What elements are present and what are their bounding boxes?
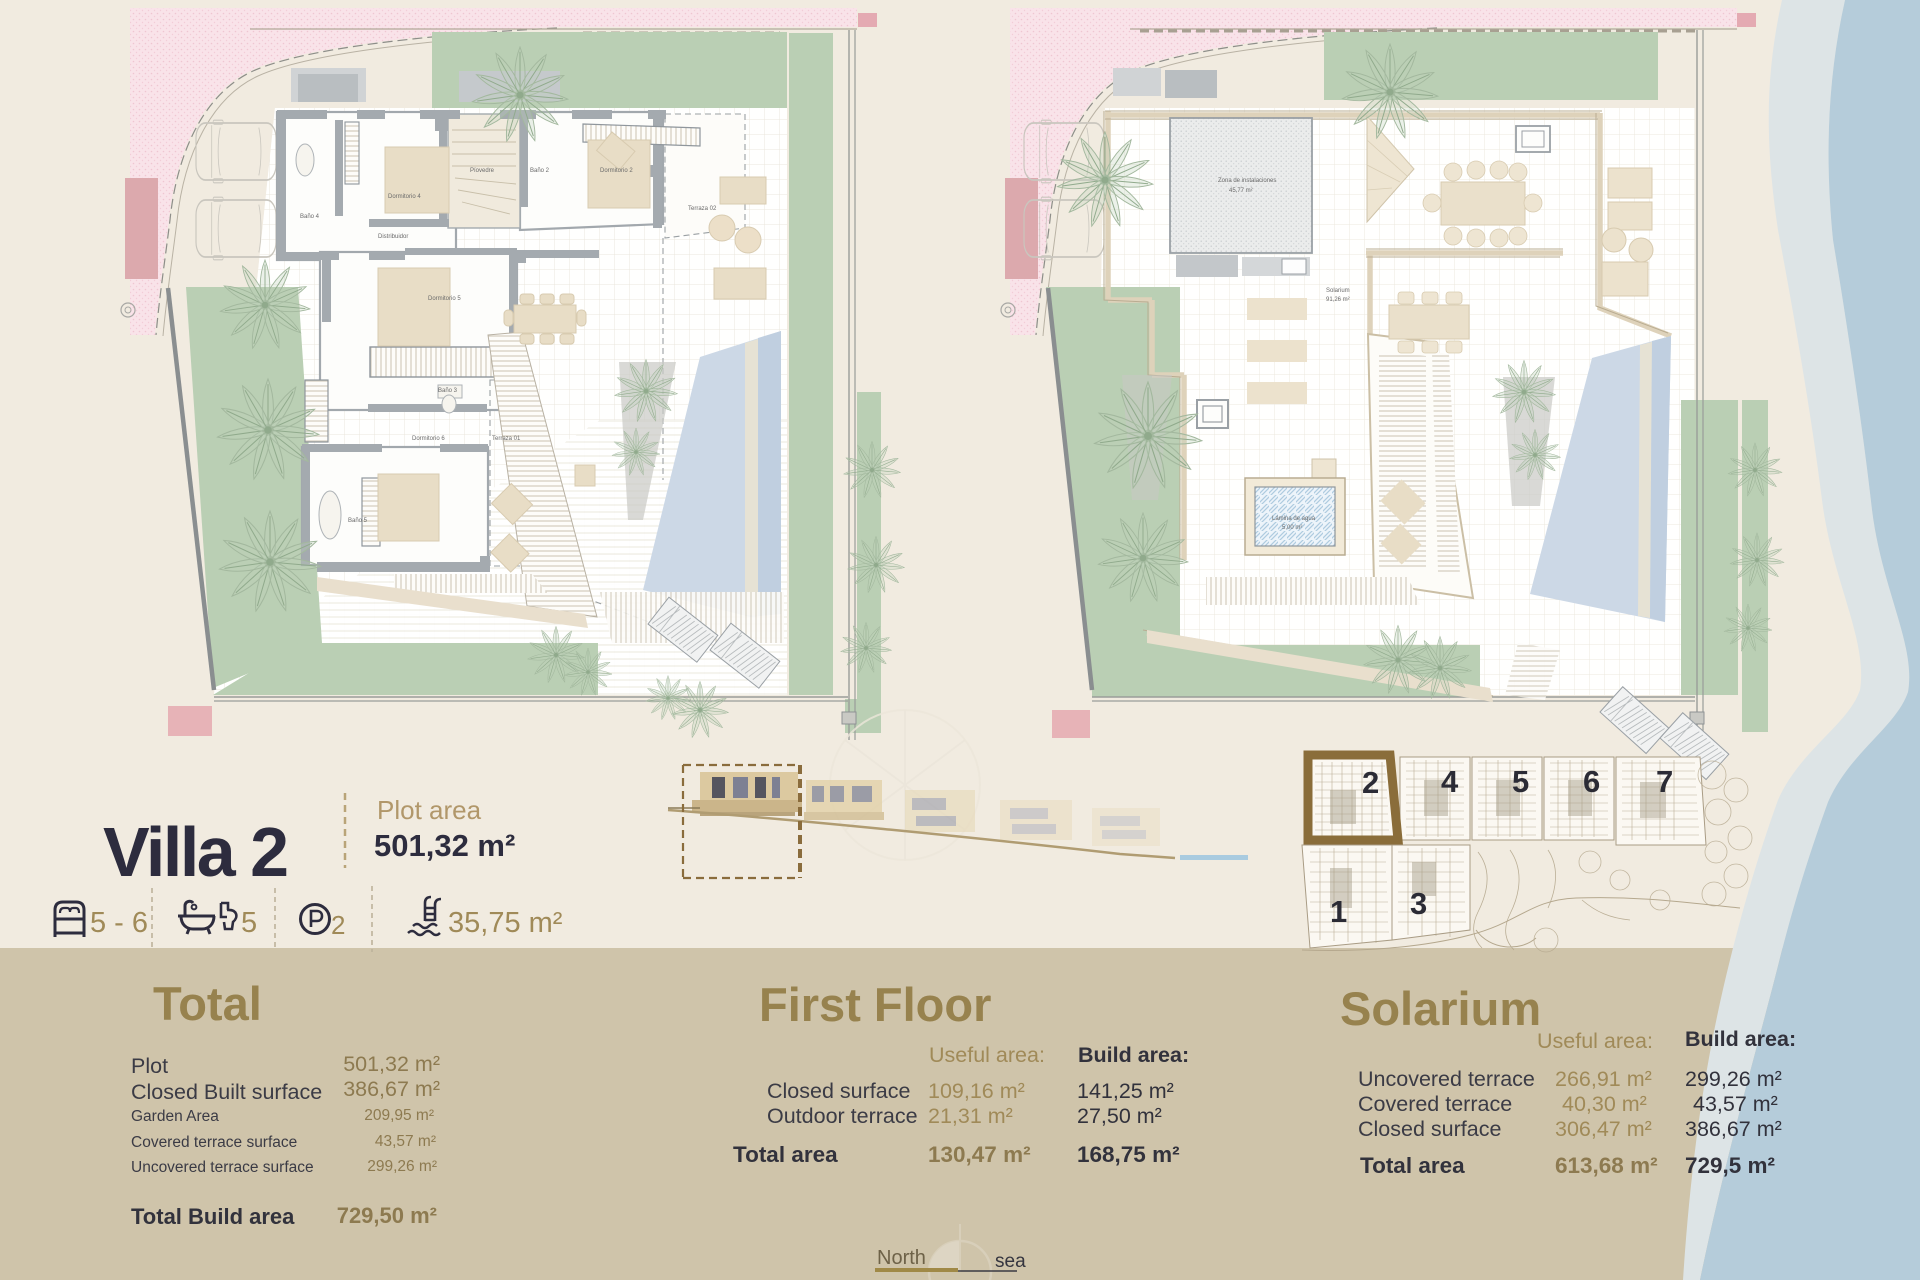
svg-text:21,31 m²: 21,31 m² — [928, 1104, 1013, 1128]
svg-text:Total area: Total area — [733, 1142, 838, 1167]
svg-text:Build area:: Build area: — [1685, 1027, 1796, 1051]
svg-text:168,75 m²: 168,75 m² — [1077, 1142, 1180, 1167]
svg-text:6: 6 — [1583, 764, 1600, 799]
svg-text:sea: sea — [995, 1251, 1026, 1272]
svg-text:729,50 m²: 729,50 m² — [337, 1203, 437, 1228]
svg-text:Zona de instalaciones: Zona de instalaciones — [1218, 178, 1276, 184]
svg-text:5: 5 — [241, 907, 257, 939]
svg-text:Baño 5: Baño 5 — [348, 518, 368, 524]
svg-text:North: North — [877, 1247, 926, 1269]
svg-text:Solarium: Solarium — [1340, 982, 1541, 1035]
svg-text:35,75 m²: 35,75 m² — [448, 907, 563, 939]
svg-text:266,91 m²: 266,91 m² — [1555, 1067, 1652, 1091]
svg-text:386,67 m²: 386,67 m² — [1685, 1117, 1782, 1141]
svg-text:130,47 m²: 130,47 m² — [928, 1142, 1031, 1167]
svg-text:Uncovered terrace surface: Uncovered terrace surface — [131, 1159, 314, 1176]
svg-text:3: 3 — [1410, 886, 1427, 921]
svg-text:Terraza 02: Terraza 02 — [688, 206, 717, 212]
svg-text:2: 2 — [331, 910, 345, 940]
svg-text:Solarium: Solarium — [1326, 288, 1350, 294]
svg-text:Dormitorio 6: Dormitorio 6 — [412, 436, 445, 442]
svg-text:Villa 2: Villa 2 — [103, 813, 287, 891]
svg-text:27,50 m²: 27,50 m² — [1077, 1104, 1162, 1128]
svg-text:Closed surface: Closed surface — [1358, 1117, 1501, 1141]
svg-text:299,26 m²: 299,26 m² — [367, 1158, 437, 1175]
svg-text:Uncovered terrace: Uncovered terrace — [1358, 1067, 1535, 1091]
svg-text:Píovedre: Píovedre — [470, 168, 495, 174]
svg-text:4: 4 — [1441, 764, 1459, 799]
svg-text:5: 5 — [1512, 764, 1529, 799]
svg-text:613,68 m²: 613,68 m² — [1555, 1153, 1658, 1178]
svg-text:306,47 m²: 306,47 m² — [1555, 1117, 1652, 1141]
svg-text:Plot area: Plot area — [377, 795, 482, 825]
svg-text:2: 2 — [1362, 765, 1379, 800]
svg-text:First Floor: First Floor — [759, 978, 991, 1031]
svg-text:5 - 6: 5 - 6 — [90, 907, 148, 939]
svg-text:Baño 4: Baño 4 — [300, 214, 320, 220]
svg-text:Baño 2: Baño 2 — [530, 168, 550, 174]
svg-text:386,67 m²: 386,67 m² — [343, 1077, 440, 1101]
svg-text:501,32 m²: 501,32 m² — [374, 828, 515, 863]
svg-text:Dormitorio 4: Dormitorio 4 — [388, 194, 421, 200]
svg-text:Total: Total — [153, 977, 262, 1030]
svg-text:Total Build area: Total Build area — [131, 1204, 295, 1229]
svg-text:Closed Built surface: Closed Built surface — [131, 1080, 322, 1104]
svg-text:45,77 m²: 45,77 m² — [1229, 188, 1253, 194]
svg-text:Lámina de agua: Lámina de agua — [1272, 516, 1316, 522]
svg-text:729,5 m²: 729,5 m² — [1685, 1153, 1776, 1178]
svg-text:Covered terrace surface: Covered terrace surface — [131, 1134, 297, 1151]
svg-text:141,25 m²: 141,25 m² — [1077, 1079, 1174, 1103]
svg-text:Useful area:: Useful area: — [929, 1043, 1045, 1067]
svg-text:501,32 m²: 501,32 m² — [343, 1052, 440, 1076]
svg-text:5,00 m²: 5,00 m² — [1282, 525, 1302, 531]
svg-text:Total area: Total area — [1360, 1153, 1465, 1178]
svg-text:Plot: Plot — [131, 1054, 168, 1078]
svg-text:Covered terrace: Covered terrace — [1358, 1092, 1512, 1116]
svg-text:Dormitorio 2: Dormitorio 2 — [600, 168, 633, 174]
svg-text:43,57 m²: 43,57 m² — [1693, 1092, 1778, 1116]
svg-text:43,57 m²: 43,57 m² — [375, 1133, 436, 1150]
svg-text:Outdoor terrace: Outdoor terrace — [767, 1104, 918, 1128]
svg-text:Dormitorio 5: Dormitorio 5 — [428, 296, 461, 302]
svg-text:Distribuidor: Distribuidor — [378, 234, 408, 240]
svg-text:40,30 m²: 40,30 m² — [1562, 1092, 1647, 1116]
svg-text:Terraza 01: Terraza 01 — [492, 436, 521, 442]
svg-text:209,95 m²: 209,95 m² — [364, 1107, 434, 1124]
svg-text:Useful area:: Useful area: — [1537, 1029, 1653, 1053]
svg-text:Closed surface: Closed surface — [767, 1079, 910, 1103]
svg-text:Baño 3: Baño 3 — [438, 388, 458, 394]
svg-text:Garden Area: Garden Area — [131, 1108, 219, 1125]
svg-text:91,26 m²: 91,26 m² — [1326, 297, 1350, 303]
svg-text:1: 1 — [1330, 894, 1347, 929]
svg-text:Build area:: Build area: — [1078, 1043, 1189, 1067]
svg-text:7: 7 — [1656, 764, 1673, 799]
svg-text:299,26 m²: 299,26 m² — [1685, 1067, 1782, 1091]
svg-text:109,16 m²: 109,16 m² — [928, 1079, 1025, 1103]
